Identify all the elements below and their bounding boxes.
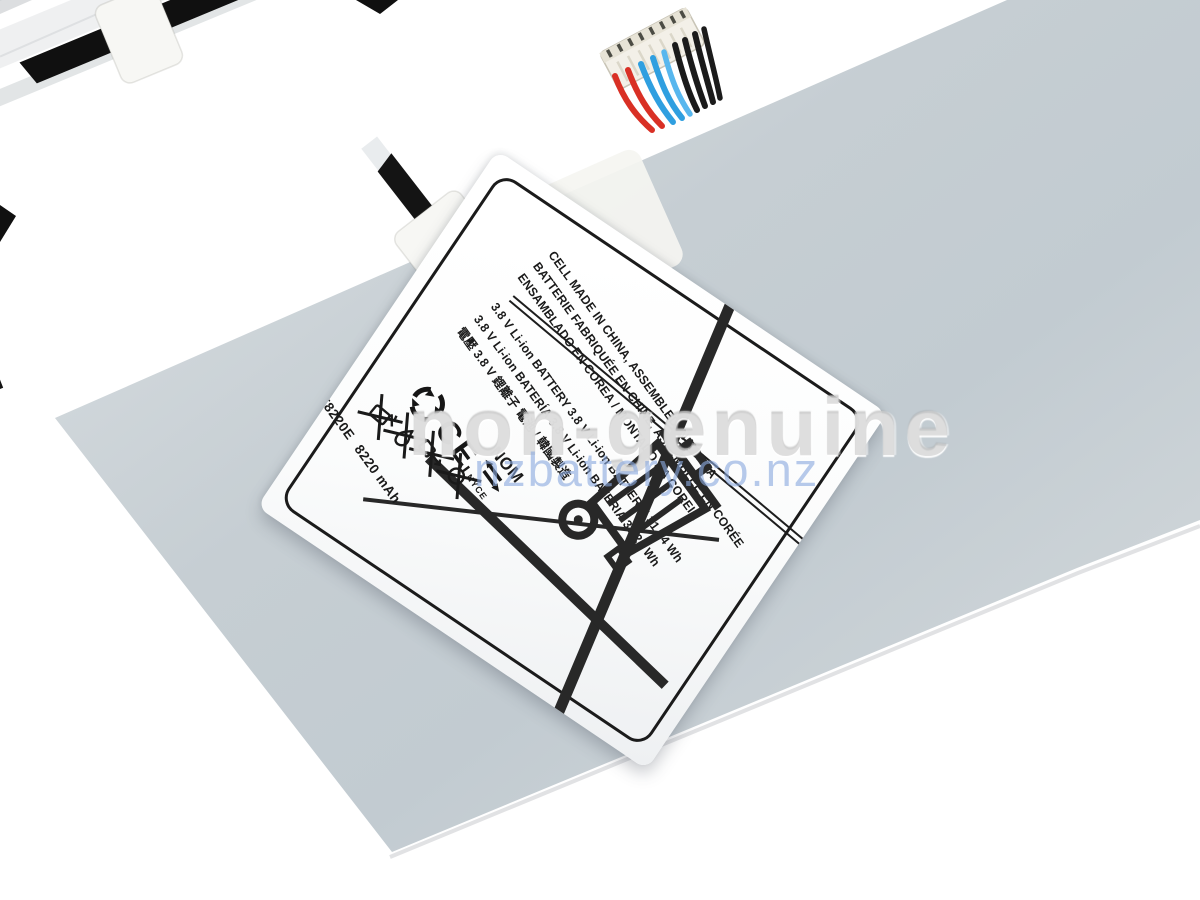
battery-right-edge [0, 339, 15, 467]
connector-assembly [599, 7, 720, 130]
battery-bottom-edge [0, 0, 438, 258]
watermark-site-url: nzbattery.co.nz [474, 444, 819, 496]
frame-fragment-top [356, 0, 398, 14]
frame-fragment-left [0, 205, 16, 242]
battery-product-photo: CELL MADE IN CHINA, ASSEMBLED IN KOREA B… [0, 0, 1200, 900]
